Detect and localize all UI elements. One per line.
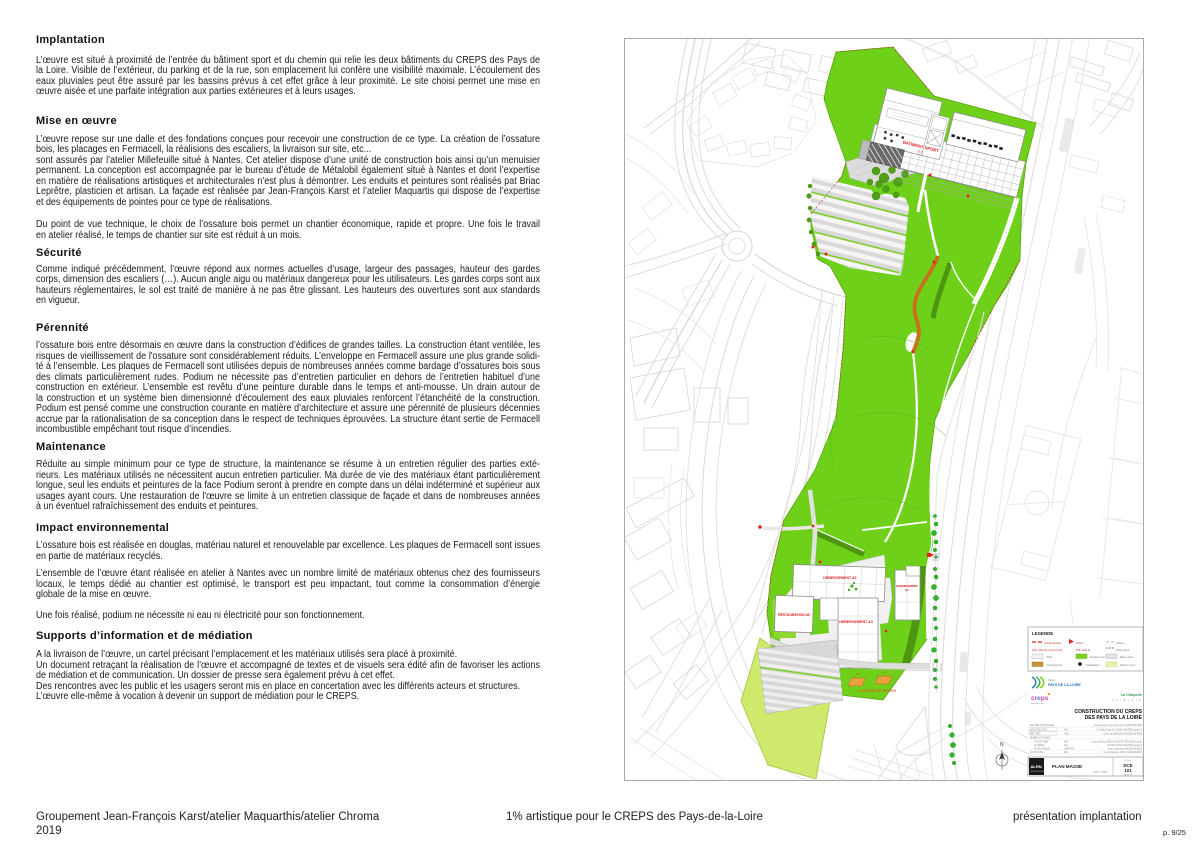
svg-text:N. Plan: N. Plan	[1125, 760, 1132, 762]
svg-text:LEGENDE: LEGENDE	[1032, 631, 1053, 636]
svg-text:N: N	[1000, 742, 1004, 748]
svg-text:Emprise vert: Emprise vert	[1090, 655, 1105, 659]
svg-text:Clôture: Clôture	[1116, 641, 1125, 645]
svg-text:pays de la loire: pays de la loire	[1031, 703, 1045, 705]
svg-text:Voirie: Voirie	[1046, 655, 1053, 659]
svg-text:INDICE B: INDICE B	[1124, 775, 1133, 777]
svg-text:creps: creps	[1031, 695, 1049, 702]
svg-text:N.B. Côté rdc (noue privé): N.B. Côté rdc (noue privé)	[1032, 648, 1062, 652]
svg-text:LOGEMENT DE SERVICE: LOGEMENT DE SERVICE	[858, 689, 896, 693]
svg-text:DES PAYS DE LA LOIRE: DES PAYS DE LA LOIRE	[1085, 715, 1143, 721]
svg-text:MAITRE D OUVRAGE: MAITRE D OUVRAGE	[1030, 724, 1054, 727]
svg-text:Limite parcelle: Limite parcelle	[1044, 641, 1061, 645]
svg-text:101: 101	[1124, 768, 1132, 773]
svg-text:Béton pavé: Béton pavé	[1120, 655, 1134, 659]
svg-text:PAYS DE LA LOIRE: PAYS DE LA LOIRE	[1048, 683, 1081, 687]
svg-text:Candélabre: Candélabre	[1086, 663, 1100, 667]
svg-text:Cheminement: Cheminement	[1046, 663, 1062, 667]
svg-text:Accès: Accès	[1076, 641, 1084, 645]
svg-text:La direction 2 rue de la Loire: La direction 2 rue de la Loire 44000 NAN…	[1094, 724, 1142, 727]
svg-text:C2: C2	[883, 670, 887, 674]
svg-text:Région: Région	[1048, 679, 1056, 682]
svg-text:N.B. Côté ét.: N.B. Côté ét.	[1076, 648, 1091, 652]
svg-text:Porte gravit: Porte gravit	[1116, 648, 1130, 652]
svg-text:HEBERGEMENT A3: HEBERGEMENT A3	[839, 620, 872, 624]
svg-text:ECONOMIE: ECONOMIE	[1030, 751, 1043, 754]
svg-text:ALRN: ALRN	[1031, 764, 1042, 769]
svg-text:rue de Saturne 44470 CARQUEFOU: rue de Saturne 44470 CARQUEFOU	[1103, 751, 1142, 754]
svg-text:s u r E r d r e: s u r E r d r e	[1112, 698, 1142, 702]
svg-text:PLAN MASSE: PLAN MASSE	[1052, 764, 1082, 769]
svg-text:RESTAURATION A2: RESTAURATION A2	[778, 613, 810, 617]
svg-text:Réserve fonc.: Réserve fonc.	[1120, 663, 1136, 667]
svg-text:C1: C1	[856, 672, 860, 676]
svg-text:HEBERGEMENT A1: HEBERGEMENT A1	[823, 576, 856, 580]
svg-text:ECH : 1/500: ECH : 1/500	[1094, 771, 1108, 774]
svg-text:AIA: AIA	[1064, 751, 1068, 754]
svg-text:B1: B1	[905, 588, 909, 592]
svg-text:La Chapelle: La Chapelle	[1121, 693, 1142, 697]
